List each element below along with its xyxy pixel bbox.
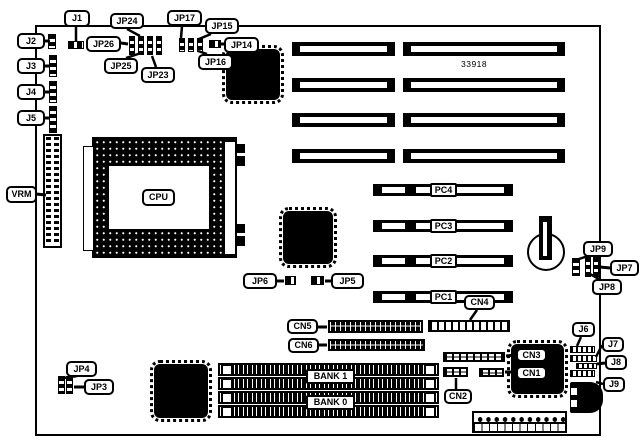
j5-connector — [49, 106, 57, 133]
callout-jp17: JP17 — [167, 10, 202, 26]
callout-j2: J2 — [17, 33, 45, 49]
cpu-clip-bottom — [237, 224, 245, 246]
jp6-jumper — [285, 276, 296, 285]
j2-connector — [48, 34, 56, 49]
callout-cn3: CN3 — [516, 348, 547, 362]
callout-jp7: JP7 — [610, 260, 639, 276]
callout-j3: J3 — [17, 58, 45, 74]
callout-jp8: JP8 — [592, 279, 622, 295]
power-connector-cells — [474, 422, 565, 431]
pin-header-4 — [570, 370, 595, 377]
isa-slot-stripe — [300, 82, 387, 88]
pci-slot-segment — [382, 223, 405, 229]
power-connector — [472, 411, 567, 433]
pci-slot-segment — [382, 258, 405, 264]
cn6-connector — [328, 339, 425, 351]
pci-label-pc2: PC2 — [430, 254, 457, 268]
ic-chip-bottom-left — [154, 364, 208, 418]
vrm-connector — [43, 134, 62, 248]
isa-slot-1-short — [292, 42, 395, 56]
pci-label-pc3: PC3 — [430, 219, 457, 233]
callout-j4: J4 — [17, 84, 45, 100]
cn3-connector — [443, 352, 505, 362]
ic-chip-middle — [283, 211, 333, 264]
callout-jp25: JP25 — [104, 58, 138, 74]
jp16-jumper — [188, 38, 194, 52]
pci-label-pc4: PC4 — [430, 183, 457, 197]
callout-jp16: JP16 — [198, 54, 233, 70]
pci-slot-segment — [382, 187, 405, 193]
isa-slot-stripe — [411, 46, 557, 52]
cpu-retention-strip-left — [83, 146, 94, 251]
cn1-connector — [479, 368, 504, 377]
jp7-jumper — [593, 257, 599, 277]
motherboard-diagram: 33918 PC4 PC3 PC2 PC1 CPU BANK 1 BANK 0 — [0, 0, 640, 441]
callout-jp3: JP3 — [84, 379, 114, 395]
callout-jp9: JP9 — [583, 241, 613, 257]
jp17-jumper — [179, 38, 185, 52]
callout-j5: J5 — [17, 110, 45, 126]
callout-line-jp7 — [600, 267, 610, 268]
isa-slot-4-short — [292, 149, 395, 163]
isa-slot-stripe — [300, 117, 387, 123]
isa-slot-3-long — [403, 113, 565, 127]
cn2-connector — [443, 367, 468, 377]
isa-slot-stripe — [300, 153, 387, 159]
cpu-socket-strip-right — [224, 141, 236, 255]
vrm-center-gap — [51, 136, 54, 246]
isa-slot-stripe — [411, 117, 557, 123]
callout-jp23: JP23 — [141, 67, 175, 83]
callout-jp15: JP15 — [205, 18, 239, 34]
bank1-label: BANK 1 — [306, 369, 355, 384]
keyboard-connector — [570, 382, 603, 413]
ic-chip-top — [226, 49, 280, 100]
pci-label-pc1: PC1 — [430, 290, 457, 304]
callout-cn1: CN1 — [516, 366, 547, 380]
jp25-jumper — [138, 36, 144, 55]
j6-pin-header — [570, 346, 595, 353]
callout-cn4: CN4 — [464, 295, 495, 310]
callout-cn6: CN6 — [288, 338, 319, 353]
isa-slot-3-short — [292, 113, 395, 127]
power-connector-pins — [474, 413, 565, 422]
callout-jp6: JP6 — [243, 273, 277, 289]
callout-j6: J6 — [572, 322, 595, 337]
isa-slot-1-long — [403, 42, 565, 56]
jp23-jumper — [156, 36, 162, 55]
j7-pin-header — [570, 355, 597, 362]
callout-cn5: CN5 — [287, 319, 318, 334]
cpu-label: CPU — [142, 189, 175, 206]
callout-j7: J7 — [602, 337, 624, 352]
cn5-connector — [328, 320, 423, 333]
callout-j9: J9 — [603, 377, 625, 392]
isa-slot-stripe — [300, 46, 387, 52]
callout-jp24: JP24 — [110, 13, 144, 29]
callout-jp26: JP26 — [86, 36, 121, 52]
jp15-jumper — [197, 38, 203, 52]
bank0-label: BANK 0 — [306, 395, 355, 410]
keyboard-connector-notch — [571, 400, 577, 407]
j1-jumper — [68, 41, 84, 49]
callout-jp14: JP14 — [224, 37, 259, 53]
pci-slot-segment — [382, 294, 405, 300]
callout-cn2: CN2 — [444, 389, 472, 404]
battery-clip — [539, 216, 552, 260]
isa-slot-stripe — [411, 153, 557, 159]
jp26-jumper — [129, 36, 135, 55]
jp9-jumper — [572, 258, 580, 276]
j4-connector — [49, 81, 57, 103]
j3-connector — [49, 55, 57, 77]
isa-slot-4-long — [403, 149, 565, 163]
battery-clip-slot — [543, 222, 547, 256]
jp8-jumper — [585, 257, 591, 277]
board-part-number: 33918 — [461, 59, 487, 69]
isa-slot-stripe — [411, 82, 557, 88]
jp4-jumper — [58, 376, 65, 394]
jp3-jumper — [66, 376, 73, 394]
callout-jp4: JP4 — [66, 361, 97, 377]
keyboard-connector-notch — [571, 388, 577, 395]
jp14-jumper — [209, 40, 221, 48]
isa-slot-2-long — [403, 78, 565, 92]
callout-vrm: VRM — [6, 186, 37, 203]
callout-j8: J8 — [605, 355, 627, 370]
cn4-connector — [428, 320, 510, 332]
jp5-jumper — [311, 276, 324, 285]
callout-jp5: JP5 — [331, 273, 364, 289]
jp24-jumper — [147, 36, 153, 55]
callout-j1: J1 — [64, 10, 90, 27]
j8-pin-header — [576, 363, 597, 369]
isa-slot-2-short — [292, 78, 395, 92]
cpu-clip-top — [237, 144, 245, 166]
